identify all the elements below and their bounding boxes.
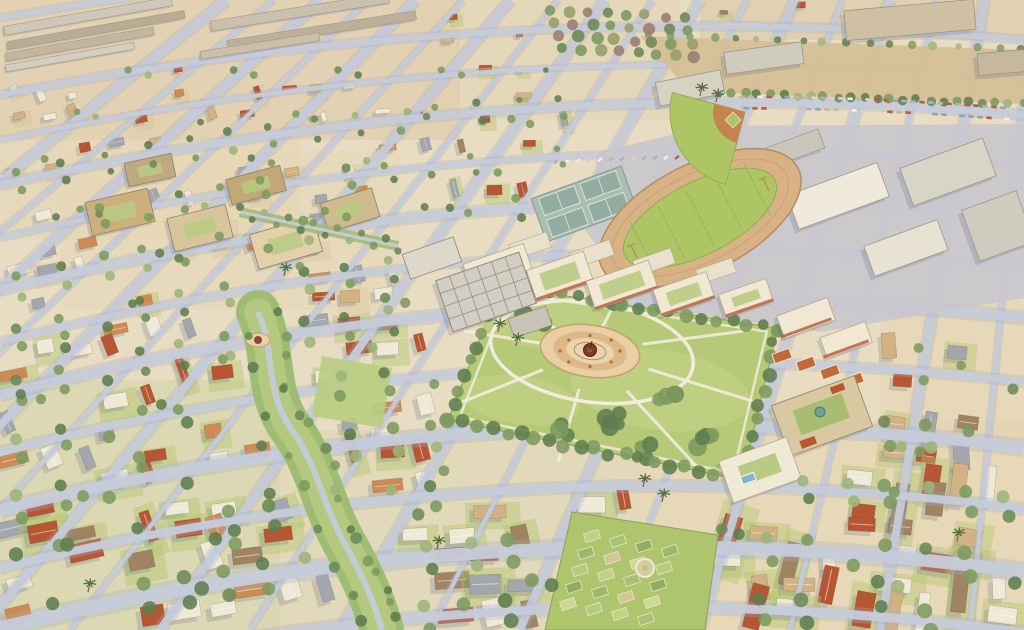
tree <box>282 331 292 341</box>
tree <box>557 43 567 53</box>
tree <box>424 480 436 492</box>
tree <box>918 375 928 385</box>
tree <box>886 40 894 48</box>
tree <box>430 500 442 512</box>
tree <box>311 115 318 122</box>
tree <box>330 484 341 495</box>
tree <box>342 163 351 172</box>
tree <box>915 446 926 457</box>
tree <box>285 214 293 222</box>
tree <box>695 313 707 325</box>
tree <box>173 404 184 415</box>
tree <box>334 390 346 402</box>
tree <box>614 45 625 56</box>
tree <box>346 237 354 245</box>
tree <box>649 456 661 468</box>
tree <box>393 445 405 457</box>
tree <box>759 385 772 398</box>
tree <box>412 508 424 520</box>
tree <box>774 36 781 43</box>
tree <box>350 532 362 544</box>
parked-car <box>752 107 758 110</box>
tree <box>347 525 355 533</box>
tree <box>739 319 752 332</box>
tree <box>372 567 381 576</box>
tree <box>16 452 28 464</box>
house-roof <box>174 89 184 98</box>
tree <box>299 480 310 491</box>
tree <box>634 47 644 57</box>
parked-car <box>869 109 875 112</box>
tree <box>62 175 71 184</box>
tree <box>298 216 308 226</box>
tree <box>145 71 152 78</box>
tree <box>273 307 282 316</box>
tree <box>752 592 765 605</box>
tree <box>149 160 157 168</box>
tree <box>891 580 905 594</box>
tree <box>575 45 586 56</box>
parked-car <box>748 95 754 98</box>
tree <box>925 441 938 454</box>
tree <box>382 234 390 242</box>
tree <box>131 522 143 534</box>
tree <box>560 161 567 168</box>
tree <box>403 108 411 116</box>
tree <box>746 430 758 442</box>
tree <box>652 393 666 407</box>
tree <box>554 145 561 152</box>
tree <box>632 303 644 315</box>
tree <box>733 35 739 41</box>
tree <box>215 232 224 241</box>
parked-car <box>824 108 830 111</box>
tree <box>236 203 244 211</box>
tree <box>543 67 549 73</box>
paseo-gazebo <box>254 336 262 344</box>
tree <box>264 123 272 131</box>
parked-car <box>851 109 857 112</box>
parked-car <box>865 98 871 101</box>
tree <box>194 581 209 596</box>
parked-car <box>820 97 826 100</box>
tree <box>62 280 72 290</box>
tree <box>225 298 235 308</box>
tree <box>370 242 378 250</box>
tree <box>230 66 238 74</box>
tree <box>345 331 355 341</box>
tree <box>309 219 316 226</box>
tree <box>470 419 484 433</box>
tree <box>255 176 264 185</box>
tree <box>358 129 365 136</box>
tree <box>12 168 20 176</box>
tree <box>504 613 519 628</box>
tree <box>52 213 60 221</box>
tree <box>794 593 809 608</box>
tree <box>330 460 340 470</box>
tree <box>156 399 167 410</box>
tree <box>192 154 199 161</box>
tree <box>758 319 769 330</box>
tree <box>298 316 309 327</box>
tree <box>354 71 361 78</box>
tree <box>181 416 193 428</box>
tree <box>9 547 23 561</box>
tree <box>387 422 399 434</box>
tree <box>256 557 269 570</box>
tree <box>452 386 464 398</box>
tree <box>268 159 276 167</box>
tree <box>878 415 890 427</box>
tree <box>525 573 539 587</box>
parked-car <box>896 111 902 114</box>
tree <box>56 158 65 167</box>
tree <box>458 71 465 78</box>
tree <box>11 271 20 280</box>
house-roof <box>340 290 360 303</box>
tree <box>466 354 476 364</box>
tree <box>957 546 972 561</box>
tree <box>320 443 331 454</box>
tree <box>56 261 66 271</box>
tree <box>621 10 632 21</box>
tree <box>651 49 662 60</box>
parked-car <box>779 107 785 110</box>
tree <box>143 601 157 615</box>
tree <box>174 254 183 263</box>
tree <box>261 209 268 216</box>
tree <box>180 308 189 317</box>
tree <box>438 66 445 73</box>
tree <box>922 481 935 494</box>
tree <box>896 441 907 452</box>
tree <box>878 538 892 552</box>
tree <box>526 120 534 128</box>
tree <box>464 209 472 217</box>
parked-car <box>914 112 920 115</box>
tree <box>498 593 513 608</box>
tree <box>282 351 291 360</box>
tree <box>545 5 555 15</box>
tree <box>888 486 899 497</box>
tree <box>380 162 388 170</box>
tree <box>10 375 21 386</box>
tree <box>917 603 932 618</box>
roof-ridge <box>999 579 1000 597</box>
tree <box>624 23 633 32</box>
tree <box>753 36 759 42</box>
tree <box>421 203 429 211</box>
tree <box>595 44 607 56</box>
tree <box>390 176 397 183</box>
tree <box>363 157 371 165</box>
tree <box>101 219 111 229</box>
tree <box>55 480 67 492</box>
tree <box>349 591 358 600</box>
aerial-masterplan-illustration: Watercolor aerial bird's-eye rendering o… <box>0 0 1024 630</box>
tree <box>262 582 275 595</box>
tree <box>384 586 392 594</box>
tree <box>321 207 329 215</box>
tree <box>751 399 764 412</box>
tree <box>678 460 691 473</box>
tree <box>60 330 70 340</box>
tree <box>630 36 640 46</box>
tree <box>494 168 502 176</box>
tree <box>574 440 589 455</box>
house-roof <box>375 108 390 114</box>
tree <box>60 384 70 394</box>
tree <box>803 493 814 504</box>
tree <box>285 452 292 459</box>
tree <box>183 595 197 609</box>
tree <box>186 135 193 142</box>
tree <box>506 555 520 569</box>
tree <box>560 113 567 120</box>
tree <box>767 337 777 347</box>
tree <box>664 23 675 34</box>
tree <box>143 263 152 272</box>
tree <box>174 339 184 349</box>
parked-car <box>901 100 907 103</box>
tree <box>345 279 354 288</box>
tree <box>144 141 152 149</box>
tree <box>74 108 81 115</box>
tree <box>446 204 454 212</box>
parked-car <box>874 98 880 101</box>
tree <box>390 275 399 284</box>
tree <box>334 66 341 73</box>
tree <box>425 420 436 431</box>
tree <box>908 41 916 49</box>
paseo-lawn <box>312 356 392 428</box>
tree <box>607 33 619 45</box>
parked-car <box>793 96 799 99</box>
tree <box>556 440 569 453</box>
tree <box>378 367 389 378</box>
tree <box>229 537 242 550</box>
tree <box>54 365 64 375</box>
tree <box>797 475 808 486</box>
tree <box>606 20 616 30</box>
tree <box>486 421 500 435</box>
tree <box>711 33 720 42</box>
tree <box>716 523 728 535</box>
tree <box>304 336 315 347</box>
tree <box>102 375 113 386</box>
tree <box>36 394 46 404</box>
tree <box>76 206 83 213</box>
tree <box>216 565 230 579</box>
tree <box>431 442 442 453</box>
tree <box>726 88 735 97</box>
tree <box>137 245 146 254</box>
tree <box>602 415 617 430</box>
tree <box>383 305 393 315</box>
tree <box>128 299 137 308</box>
tree <box>355 615 367 627</box>
tree <box>334 495 342 503</box>
tree <box>758 613 771 626</box>
tree <box>400 298 410 308</box>
tree <box>661 13 671 23</box>
tree <box>963 426 975 438</box>
tree <box>229 146 238 155</box>
tree <box>352 112 359 119</box>
tree <box>548 17 559 28</box>
tree <box>449 398 462 411</box>
tree <box>103 491 116 504</box>
tree <box>620 447 633 460</box>
tree <box>503 429 515 441</box>
house-roof <box>720 10 728 14</box>
parked-car <box>761 107 767 110</box>
tree <box>41 155 49 163</box>
tree <box>591 32 604 45</box>
tree <box>429 379 439 389</box>
tree <box>101 152 108 159</box>
tree <box>643 23 655 35</box>
tree <box>423 113 431 121</box>
tree <box>181 205 189 213</box>
tree <box>344 428 356 440</box>
tree <box>303 417 313 427</box>
tree <box>262 499 275 512</box>
tree <box>46 597 59 610</box>
tree <box>767 555 779 567</box>
tree <box>99 250 109 260</box>
parked-car <box>811 96 817 99</box>
tree <box>380 293 390 303</box>
tree <box>397 126 406 135</box>
tree <box>61 439 72 450</box>
tree <box>928 41 937 50</box>
tree <box>707 469 720 482</box>
tree <box>695 430 710 445</box>
illustration-canvas <box>0 0 1024 630</box>
tree <box>800 616 815 630</box>
tree <box>545 578 559 592</box>
tree <box>511 194 520 203</box>
tree <box>181 477 194 490</box>
tree <box>471 559 484 572</box>
tree <box>680 12 690 22</box>
tree <box>313 525 322 534</box>
tree <box>670 49 682 61</box>
parked-car <box>766 96 772 99</box>
tree <box>144 213 153 222</box>
tree <box>133 451 146 464</box>
parked-car <box>883 99 889 102</box>
tree <box>342 212 351 221</box>
tree <box>264 488 276 500</box>
tree <box>919 419 932 432</box>
house-roof <box>881 332 897 359</box>
tree <box>292 110 299 117</box>
tree <box>295 411 305 421</box>
tree <box>439 465 450 476</box>
tree <box>467 153 474 160</box>
parked-car <box>910 100 916 103</box>
tree <box>141 313 150 322</box>
tree <box>955 43 961 49</box>
house-roof <box>376 341 399 355</box>
tree <box>333 224 341 232</box>
tree <box>256 440 267 451</box>
tree <box>384 256 393 265</box>
tree <box>261 190 270 199</box>
tree <box>666 386 683 403</box>
tree <box>174 289 183 298</box>
parked-car <box>806 108 812 111</box>
tree <box>384 385 395 396</box>
tree <box>245 332 253 340</box>
tree <box>440 413 455 428</box>
tree <box>431 104 438 111</box>
tree <box>155 249 164 258</box>
tree <box>997 490 1010 503</box>
tree <box>473 169 480 176</box>
tree <box>322 232 329 239</box>
tree <box>222 505 235 518</box>
tree <box>124 66 131 73</box>
tree <box>1007 384 1018 395</box>
parked-car <box>847 97 853 100</box>
tree <box>687 39 698 50</box>
tree <box>572 30 585 43</box>
tree <box>516 97 522 103</box>
tree <box>682 25 692 35</box>
tree <box>426 563 438 575</box>
tree <box>228 524 241 537</box>
tree <box>141 366 151 376</box>
parked-car <box>856 98 862 101</box>
parked-car <box>788 107 794 110</box>
tree <box>472 98 480 106</box>
tree <box>60 342 71 353</box>
tree <box>711 316 722 327</box>
tree <box>268 519 281 532</box>
tree <box>646 36 657 47</box>
tree <box>963 569 978 584</box>
tree <box>54 314 64 324</box>
tree <box>177 570 191 584</box>
tree <box>60 538 74 552</box>
tree <box>304 235 314 245</box>
tree <box>358 230 365 237</box>
tree <box>222 588 236 602</box>
tree <box>305 284 316 295</box>
tree <box>469 342 483 356</box>
parked-car <box>739 95 745 98</box>
tree <box>997 44 1005 52</box>
tree <box>261 411 271 421</box>
tree <box>642 436 658 452</box>
tree <box>11 324 21 334</box>
tree <box>475 328 487 340</box>
tree <box>137 405 148 416</box>
tree <box>500 533 514 547</box>
tree <box>965 505 978 518</box>
tree <box>209 532 222 545</box>
tree <box>329 562 340 573</box>
tree <box>218 354 228 364</box>
tree <box>18 186 26 194</box>
tree <box>751 412 763 424</box>
tree <box>339 263 348 272</box>
tree <box>350 450 362 462</box>
